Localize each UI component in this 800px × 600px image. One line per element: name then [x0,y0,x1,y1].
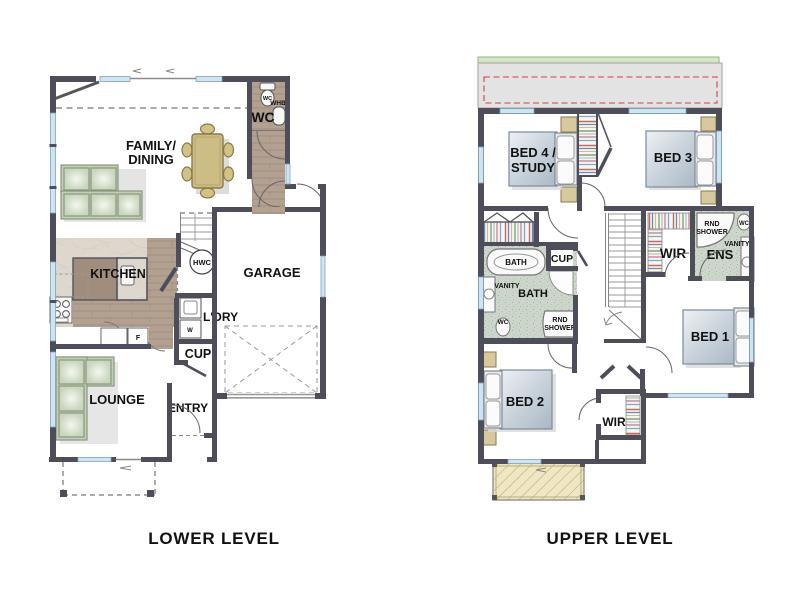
svg-text:WIR: WIR [602,415,626,429]
svg-text:STUDY: STUDY [511,160,555,175]
svg-text:WC: WC [251,109,274,125]
svg-text:WC: WC [498,319,509,326]
svg-text:ENTRY: ENTRY [168,401,208,415]
svg-text:VANITY: VANITY [494,283,519,290]
svg-text:W: W [187,328,193,334]
svg-text:KITCHEN: KITCHEN [90,267,146,281]
svg-text:DINING: DINING [128,152,174,167]
svg-text:BATH: BATH [505,258,527,267]
svg-text:RND: RND [704,221,719,228]
svg-text:CUP: CUP [185,347,211,361]
svg-text:LOWER LEVEL: LOWER LEVEL [148,529,280,548]
svg-text:BED 2: BED 2 [506,394,544,409]
svg-text:HWC: HWC [193,258,211,267]
svg-text:BED 1: BED 1 [691,329,729,344]
svg-text:CUP: CUP [551,253,573,265]
svg-text:SHOWER: SHOWER [544,325,576,332]
svg-text:RND: RND [552,317,567,324]
svg-text:F: F [136,335,141,342]
svg-text:UPPER LEVEL: UPPER LEVEL [547,529,674,548]
svg-text:SHOWER: SHOWER [696,229,728,236]
svg-text:WHB: WHB [270,100,286,107]
svg-text:BATH: BATH [518,288,548,300]
svg-text:BED 3: BED 3 [654,150,692,165]
svg-text:GARAGE: GARAGE [243,265,300,280]
svg-text:FAMILY/: FAMILY/ [126,138,176,153]
svg-text:WC: WC [739,221,750,227]
svg-text:LOUNGE: LOUNGE [89,392,145,407]
svg-text:L'DRY: L'DRY [203,310,238,324]
svg-text:BED 4 /: BED 4 / [510,145,556,160]
